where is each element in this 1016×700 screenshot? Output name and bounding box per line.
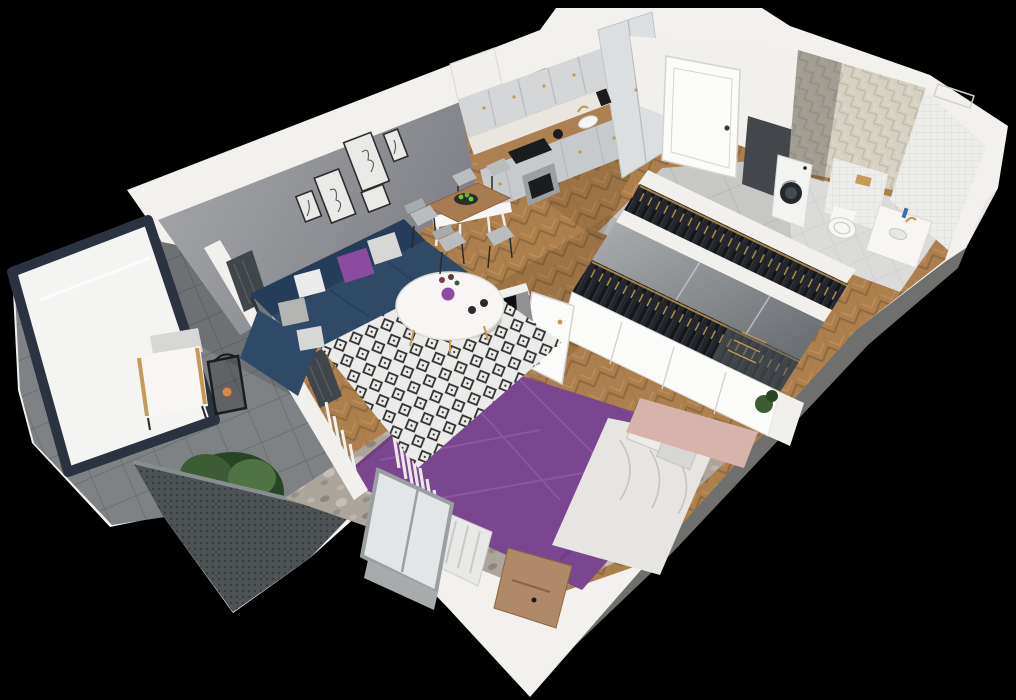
kettle xyxy=(553,129,563,139)
vase xyxy=(442,288,455,301)
nightstand-handle xyxy=(532,598,537,603)
flower-1 xyxy=(439,277,445,283)
apple-3 xyxy=(469,197,474,202)
flower-leaf xyxy=(455,281,460,286)
flower-2 xyxy=(448,274,454,280)
cup-1 xyxy=(468,306,476,314)
light-pillow-2 xyxy=(296,326,324,351)
apartment-render-canvas xyxy=(0,0,1016,700)
cup-2 xyxy=(480,299,488,307)
door-handle xyxy=(724,125,729,130)
apple-2 xyxy=(465,193,470,198)
bedroom-door-handle xyxy=(558,320,563,325)
floorplan-render xyxy=(0,0,1016,700)
lantern xyxy=(208,354,246,414)
candle-flame xyxy=(223,388,232,397)
apple-1 xyxy=(459,195,464,200)
